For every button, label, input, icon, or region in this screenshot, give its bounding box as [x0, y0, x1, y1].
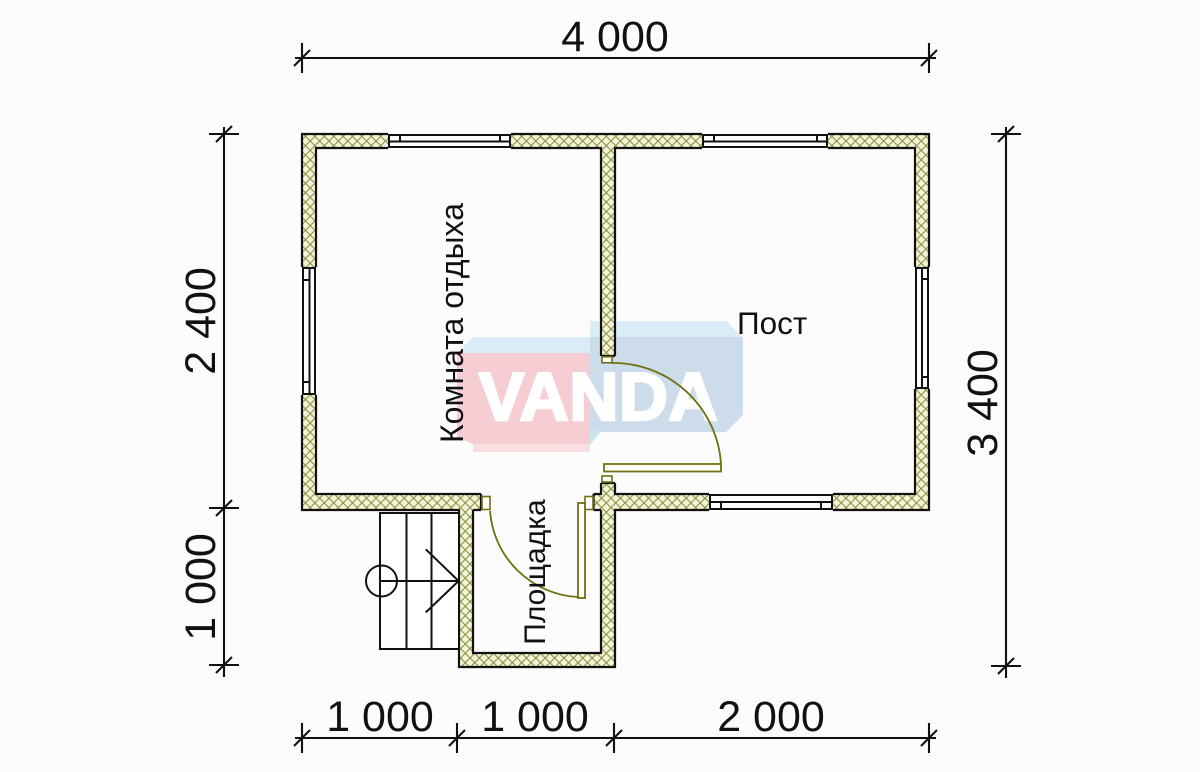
- svg-text:2 400: 2 400: [177, 267, 225, 375]
- svg-text:4 000: 4 000: [561, 13, 669, 61]
- svg-text:1 000: 1 000: [326, 693, 434, 741]
- svg-text:VANDA: VANDA: [479, 359, 718, 435]
- svg-text:Пост: Пост: [737, 305, 807, 341]
- svg-text:Комната отдыха: Комната отдыха: [434, 203, 470, 443]
- svg-text:1 000: 1 000: [177, 533, 225, 641]
- svg-text:2 000: 2 000: [717, 693, 825, 741]
- svg-text:Площадка: Площадка: [519, 499, 552, 645]
- svg-text:1 000: 1 000: [481, 693, 589, 741]
- svg-text:3 400: 3 400: [959, 349, 1007, 457]
